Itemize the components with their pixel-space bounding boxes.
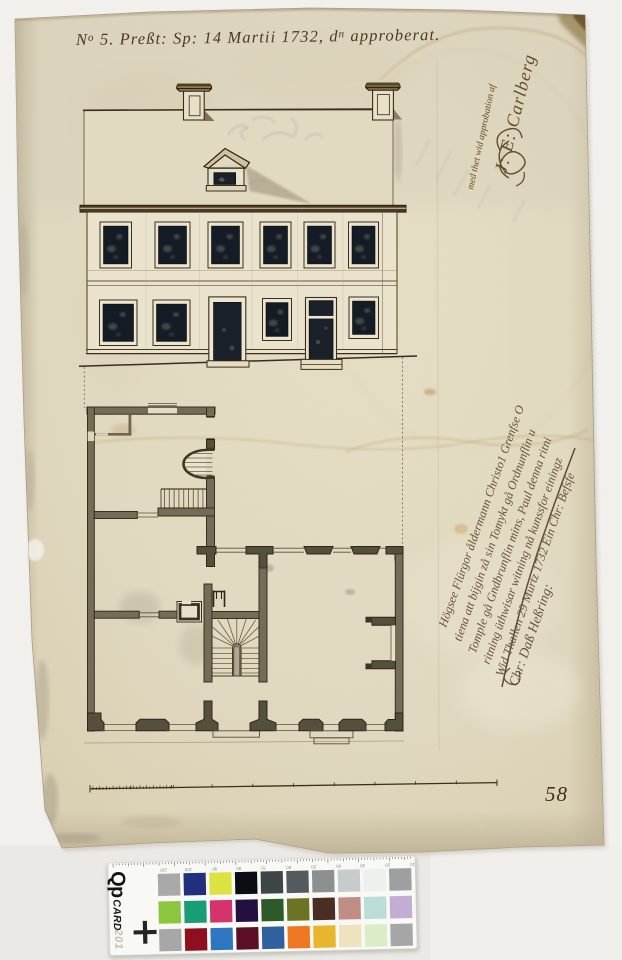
svg-text:80: 80	[236, 866, 242, 871]
svg-text:90: 90	[212, 867, 218, 872]
svg-text:30: 30	[360, 863, 366, 868]
svg-text:100: 100	[184, 867, 192, 872]
svg-text:40: 40	[336, 864, 342, 869]
svg-text:CARD: CARD	[110, 899, 123, 931]
svg-text:60: 60	[286, 865, 292, 870]
svg-text:Qp: Qp	[106, 871, 129, 898]
svg-text:110: 110	[160, 868, 168, 873]
svg-text:50: 50	[311, 864, 317, 869]
svg-text:201: 201	[112, 928, 124, 950]
svg-text:58: 58	[545, 782, 568, 806]
svg-text:10: 10	[410, 862, 416, 867]
svg-text:20: 20	[385, 863, 391, 868]
svg-text:70: 70	[261, 865, 267, 870]
